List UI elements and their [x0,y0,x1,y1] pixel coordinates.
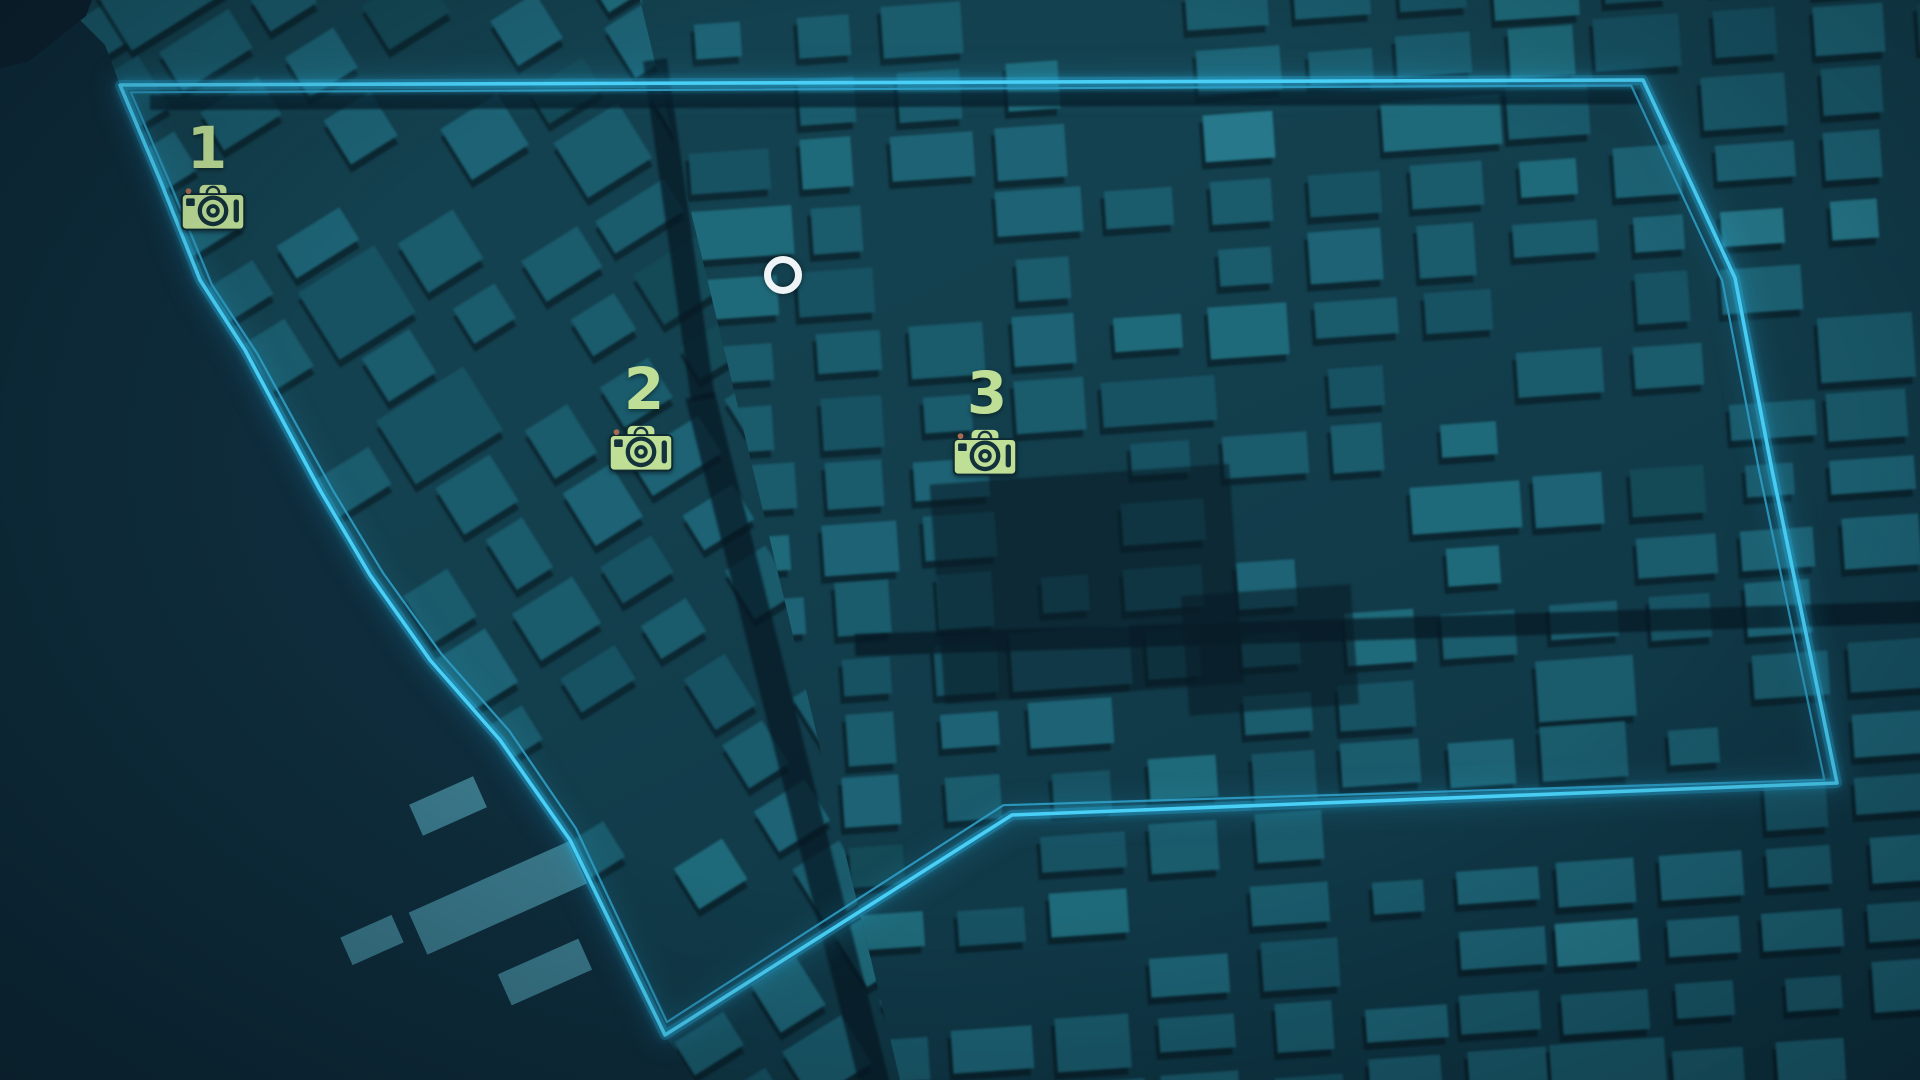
camera-marker-2[interactable]: 2 [608,424,674,472]
camera-marker-1[interactable]: 1 [180,183,246,231]
camera-icon [180,183,246,231]
camera-icon [952,428,1018,476]
city-map[interactable]: 1 2 3 [0,0,1920,1080]
camera-icon [608,424,674,472]
markers-layer: 1 2 3 [0,0,1920,1080]
camera-marker-3[interactable]: 3 [952,428,1018,476]
camera-marker-number: 1 [187,119,227,177]
objective-circle-marker[interactable] [764,256,802,294]
camera-marker-number: 2 [624,360,664,418]
camera-marker-number: 3 [967,364,1007,422]
